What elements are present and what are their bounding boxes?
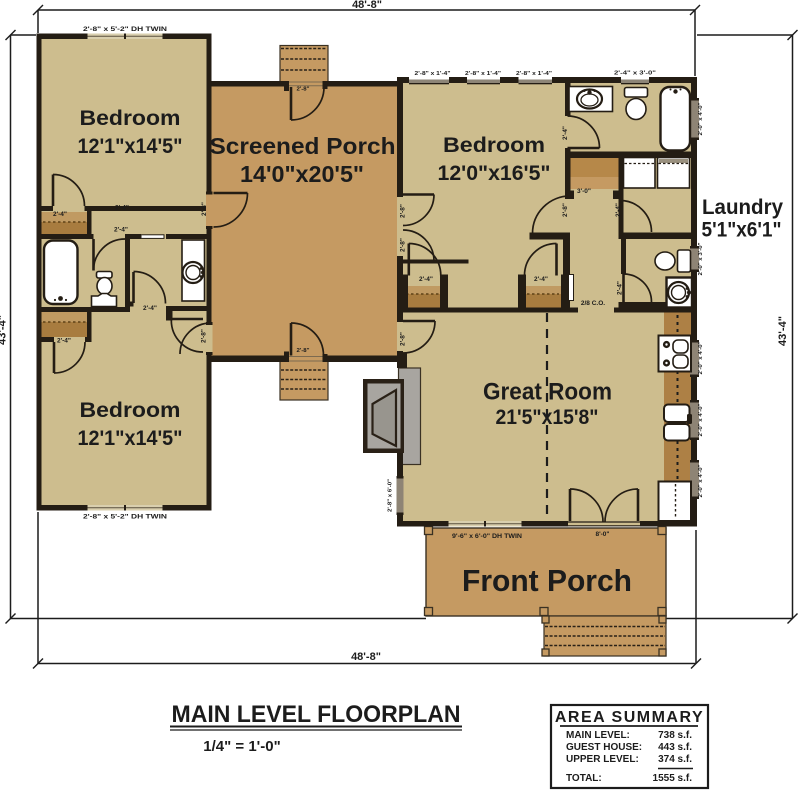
svg-text:GUEST HOUSE:: GUEST HOUSE: xyxy=(566,742,642,753)
svg-text:5'1"x6'1": 5'1"x6'1" xyxy=(702,219,782,242)
svg-text:2'-4": 2'-4" xyxy=(114,227,128,234)
svg-text:14'0"x20'5": 14'0"x20'5" xyxy=(240,161,364,187)
svg-text:1/4" = 1'-0": 1/4" = 1'-0" xyxy=(203,738,280,755)
svg-text:443 s.f.: 443 s.f. xyxy=(658,742,692,753)
svg-text:2'-8": 2'-8" xyxy=(400,238,407,252)
svg-text:738 s.f.: 738 s.f. xyxy=(658,730,692,741)
svg-text:2'-8" x 1'-4": 2'-8" x 1'-4" xyxy=(516,71,552,77)
svg-text:Screened Porch: Screened Porch xyxy=(210,133,396,159)
svg-text:2'-8": 2'-8" xyxy=(400,204,407,218)
svg-text:AREA SUMMARY: AREA SUMMARY xyxy=(555,709,704,726)
svg-text:2'-4": 2'-4" xyxy=(53,211,67,218)
svg-text:9'-6" x 6'-0" DH TWIN: 9'-6" x 6'-0" DH TWIN xyxy=(452,533,522,540)
svg-text:2'-8" x 5'-2" DH TWIN: 2'-8" x 5'-2" DH TWIN xyxy=(83,514,167,521)
svg-text:43'-4": 43'-4" xyxy=(777,316,789,346)
svg-text:MAIN LEVEL FLOORPLAN: MAIN LEVEL FLOORPLAN xyxy=(172,701,461,728)
svg-text:2'-4": 2'-4" xyxy=(615,203,622,217)
svg-text:Laundry: Laundry xyxy=(702,196,783,219)
svg-text:2'-8" x 6'-0": 2'-8" x 6'-0" xyxy=(388,479,394,512)
svg-text:1555 s.f.: 1555 s.f. xyxy=(653,773,693,784)
svg-text:2'-0" x 4'-0": 2'-0" x 4'-0" xyxy=(698,464,704,497)
svg-text:2'-0" x 4'-0": 2'-0" x 4'-0" xyxy=(698,403,704,436)
svg-text:MAIN LEVEL:: MAIN LEVEL: xyxy=(566,730,630,741)
svg-text:2'-4" x 3'-0": 2'-4" x 3'-0" xyxy=(614,71,657,77)
svg-text:2'-8": 2'-8" xyxy=(297,87,310,93)
svg-text:2'-8": 2'-8" xyxy=(201,329,208,343)
svg-text:Bedroom: Bedroom xyxy=(80,107,181,130)
svg-text:2'-4": 2'-4" xyxy=(143,305,157,312)
svg-text:Great Room: Great Room xyxy=(483,379,612,406)
svg-text:2'-8": 2'-8" xyxy=(201,202,208,216)
svg-text:12'1"x14'5": 12'1"x14'5" xyxy=(78,135,183,158)
svg-text:12'1"x14'5": 12'1"x14'5" xyxy=(78,427,183,450)
svg-text:2'-8" x 5'-2" DH TWIN: 2'-8" x 5'-2" DH TWIN xyxy=(83,26,167,33)
svg-text:2'-8" x 1'-4": 2'-8" x 1'-4" xyxy=(415,71,451,77)
svg-text:3'-0": 3'-0" xyxy=(577,188,591,195)
svg-text:12'0"x16'5": 12'0"x16'5" xyxy=(438,162,551,185)
svg-text:48'-8": 48'-8" xyxy=(351,651,381,663)
svg-text:21'5"x15'8": 21'5"x15'8" xyxy=(496,405,599,429)
svg-text:2'-8": 2'-8" xyxy=(400,332,407,346)
svg-text:2'-4": 2'-4" xyxy=(115,205,129,212)
svg-text:2'-0" x 4'-0": 2'-0" x 4'-0" xyxy=(698,341,704,374)
svg-text:8'-0": 8'-0" xyxy=(595,531,609,538)
svg-text:2'-4": 2'-4" xyxy=(57,338,71,345)
svg-text:2'-0" x 3'-0": 2'-0" x 3'-0" xyxy=(698,242,704,275)
svg-text:43'-4": 43'-4" xyxy=(0,315,9,345)
svg-text:374 s.f.: 374 s.f. xyxy=(658,754,692,765)
svg-text:2'-4": 2'-4" xyxy=(562,126,569,140)
svg-text:48'-8": 48'-8" xyxy=(352,0,382,11)
svg-text:2'-8": 2'-8" xyxy=(562,203,569,217)
svg-text:2'-4": 2'-4" xyxy=(534,276,548,283)
svg-text:TOTAL:: TOTAL: xyxy=(566,773,602,784)
svg-text:UPPER LEVEL:: UPPER LEVEL: xyxy=(566,754,639,765)
svg-text:Bedroom: Bedroom xyxy=(80,399,181,422)
svg-text:2'-8" x 1'-4": 2'-8" x 1'-4" xyxy=(465,71,501,77)
svg-text:Front Porch: Front Porch xyxy=(462,563,632,598)
svg-text:2'-4": 2'-4" xyxy=(419,276,433,283)
svg-text:2'-0" x 4'-0": 2'-0" x 4'-0" xyxy=(698,102,704,135)
svg-text:2'-4": 2'-4" xyxy=(617,281,624,295)
svg-text:2'-8": 2'-8" xyxy=(297,348,310,354)
svg-text:Bedroom: Bedroom xyxy=(443,134,545,157)
svg-text:2/8 C.O.: 2/8 C.O. xyxy=(581,300,605,307)
